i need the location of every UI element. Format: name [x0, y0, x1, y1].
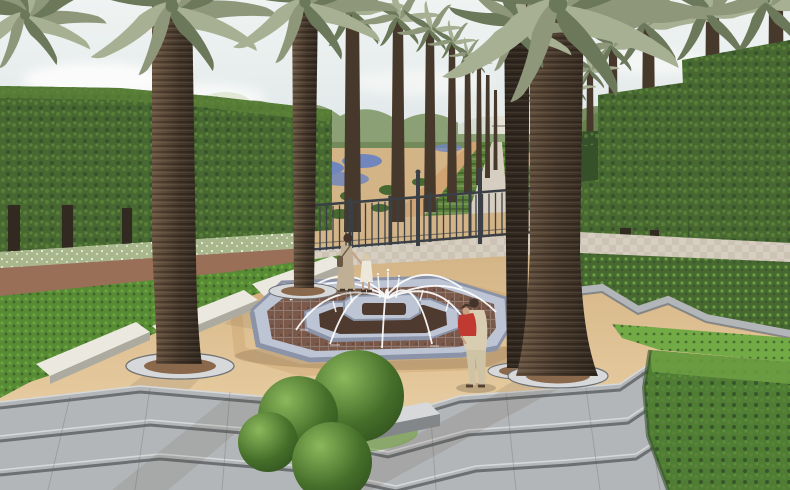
render-canvas [0, 0, 790, 490]
clipped-tree-mid-texture [598, 82, 688, 255]
carried-child-head [462, 307, 469, 314]
garden-plaza-render [0, 0, 790, 490]
child-red-shirt [458, 313, 476, 336]
gate-finial [478, 168, 483, 173]
woman-head [343, 233, 352, 242]
man-head [469, 298, 479, 308]
palm-trunk-texture [292, 0, 318, 288]
palm-trunk-texture [504, 0, 530, 368]
figure-shadow [456, 383, 496, 393]
topiary-ball [238, 412, 298, 472]
gate-finial [416, 170, 421, 175]
child-head [363, 254, 370, 261]
child-dress [360, 261, 373, 282]
hedge-block-lower-right [644, 350, 790, 490]
